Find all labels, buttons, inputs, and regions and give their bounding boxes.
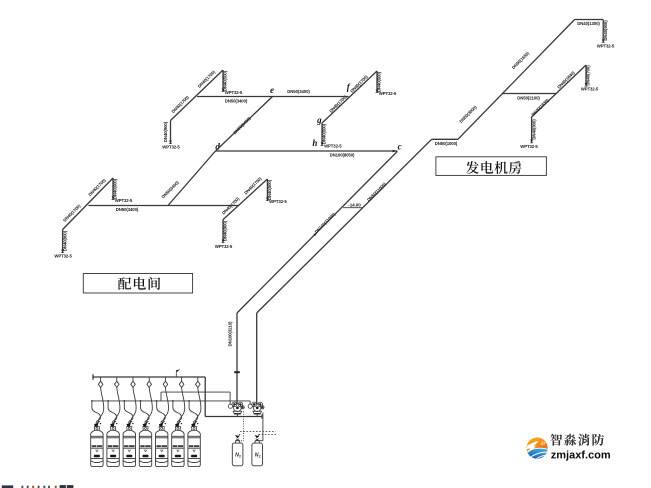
svg-text:DN50(3400): DN50(3400) [225,99,248,104]
svg-text:WPT32-5: WPT32-5 [215,244,233,249]
svg-text:WPT32-5: WPT32-5 [162,145,180,150]
svg-text:DN40(700): DN40(700) [586,65,591,86]
svg-text:WPT32-5: WPT32-5 [324,143,342,148]
svg-text:DN40(900): DN40(900) [62,230,67,251]
svg-text:2: 2 [239,455,241,459]
svg-text:g: g [316,115,322,125]
svg-text:WPT32-5: WPT32-5 [269,199,287,204]
svg-text:DN100(8050): DN100(8050) [330,152,355,157]
svg-text:DN40(900): DN40(900) [163,121,168,142]
svg-text:WPT32-5: WPT32-5 [581,87,599,92]
svg-text:2: 2 [259,455,261,459]
svg-text:DN40(500): DN40(500) [223,70,228,91]
svg-text:DN40(900): DN40(900) [531,119,536,140]
svg-text:DN40(900): DN40(900) [223,220,228,241]
svg-text:c: c [398,141,402,151]
svg-text:WPT32-5: WPT32-5 [225,90,243,95]
svg-text:DN50(1000): DN50(1000) [435,141,458,146]
svg-text:DN40(500): DN40(500) [322,123,327,144]
svg-text:WPT32-5: WPT32-5 [379,91,397,96]
svg-text:WPT32-5: WPT32-5 [597,44,615,49]
svg-text:DN100(3210): DN100(3210) [228,321,233,346]
svg-text:DN40(1300): DN40(1300) [577,21,600,26]
svg-text:e: e [270,85,274,95]
svg-text:DN50(3400): DN50(3400) [287,89,310,94]
svg-text:h: h [312,138,317,148]
svg-text:WPT32-5: WPT32-5 [115,198,133,203]
svg-text:DN50(3400): DN50(3400) [116,207,139,212]
svg-text:-14.00: -14.00 [348,202,361,207]
svg-text:DN50(2100): DN50(2100) [517,95,540,100]
svg-text:WPT32-5: WPT32-5 [54,254,72,259]
svg-text:WPT32-5: WPT32-5 [520,144,538,149]
svg-text:DN40(900): DN40(900) [603,20,608,41]
svg-text:DN40(500): DN40(500) [267,179,272,200]
svg-text:DN40(500): DN40(500) [377,71,382,92]
svg-text:DN40(500): DN40(500) [113,178,118,199]
